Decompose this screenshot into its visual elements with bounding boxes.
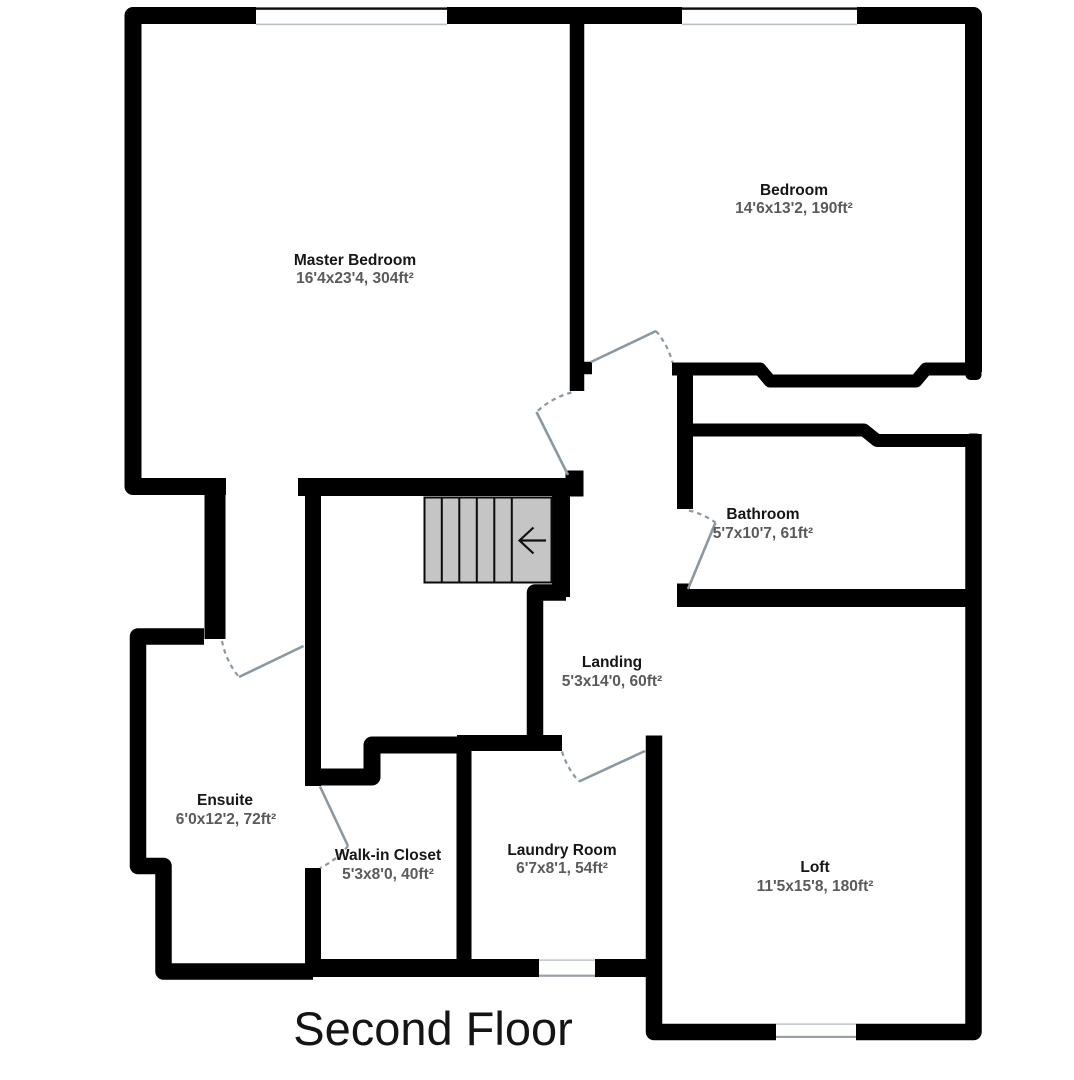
- svg-text:5'7x10'7, 61ft²: 5'7x10'7, 61ft²: [713, 525, 813, 542]
- svg-text:11'5x15'8, 180ft²: 11'5x15'8, 180ft²: [757, 878, 874, 895]
- svg-text:Bedroom: Bedroom: [760, 182, 828, 199]
- svg-text:5'3x14'0, 60ft²: 5'3x14'0, 60ft²: [562, 673, 662, 690]
- svg-text:Bathroom: Bathroom: [726, 506, 799, 523]
- svg-text:16'4x23'4, 304ft²: 16'4x23'4, 304ft²: [296, 270, 414, 287]
- svg-text:5'3x8'0, 40ft²: 5'3x8'0, 40ft²: [342, 866, 434, 883]
- svg-text:Laundry Room: Laundry Room: [507, 842, 616, 859]
- svg-text:Second Floor: Second Floor: [293, 1002, 573, 1055]
- svg-text:14'6x13'2, 190ft²: 14'6x13'2, 190ft²: [735, 200, 853, 217]
- svg-text:Master Bedroom: Master Bedroom: [294, 252, 416, 269]
- svg-text:Landing: Landing: [582, 654, 642, 671]
- svg-text:Ensuite: Ensuite: [197, 792, 253, 809]
- svg-text:Loft: Loft: [800, 859, 829, 876]
- svg-text:Walk-in Closet: Walk-in Closet: [335, 847, 441, 864]
- svg-text:6'0x12'2, 72ft²: 6'0x12'2, 72ft²: [176, 811, 276, 828]
- svg-text:6'7x8'1, 54ft²: 6'7x8'1, 54ft²: [516, 860, 608, 877]
